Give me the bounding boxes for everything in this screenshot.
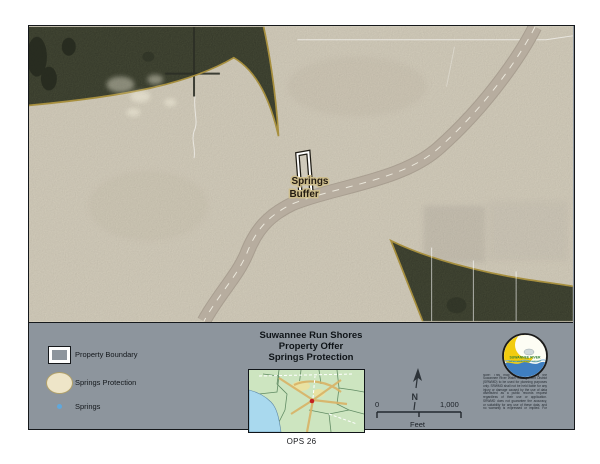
scale-start-label: 0 (375, 400, 379, 409)
scale-bar: 0 1,000 Feet (373, 396, 465, 433)
site-location-marker (310, 398, 315, 403)
scale-unit-label: Feet (410, 420, 426, 428)
map-id-label: OPS 26 (28, 437, 575, 446)
legend-label: Springs (75, 402, 100, 411)
map-title-line3: Springs Protection (225, 352, 397, 363)
legend-item-springs: Springs (43, 402, 100, 411)
springs-symbol (57, 404, 62, 409)
map-frame: Springs Buffer Property Boundary Springs… (28, 25, 575, 430)
map-document-page: Springs Buffer Property Boundary Springs… (0, 0, 600, 464)
aerial-map-canvas: Springs Buffer (29, 26, 573, 322)
srwmd-logo: SUWANNEE RIVER WATER MANAGEMENT DISTRICT (501, 332, 549, 380)
property-boundary-symbol (48, 346, 71, 364)
legend-item-property-boundary: Property Boundary (43, 346, 138, 364)
logo-manatee (524, 349, 534, 355)
springs-protection-symbol (46, 372, 73, 394)
property-label-line2: Buffer (289, 189, 318, 200)
locator-inset-map (248, 369, 365, 433)
aerial-map: Springs Buffer (29, 26, 573, 323)
map-layout-panel: Property Boundary Springs Protection Spr… (29, 324, 573, 428)
legend-label: Springs Protection (75, 378, 136, 387)
map-title: Suwannee Run Shores Property Offer Sprin… (225, 330, 397, 364)
legend-item-springs-protection: Springs Protection (43, 372, 136, 394)
legend-label: Property Boundary (75, 350, 138, 359)
map-title-line1: Suwannee Run Shores (225, 330, 397, 341)
property-label-line1: Springs (291, 176, 328, 187)
scale-end-label: 1,000 (440, 400, 459, 409)
map-title-line2: Property Offer (225, 341, 397, 352)
scale-bar-line (377, 412, 461, 418)
logo-text-bottom: WATER MANAGEMENT DISTRICT (509, 360, 543, 363)
logo-text-top: SUWANNEE RIVER (510, 355, 541, 359)
